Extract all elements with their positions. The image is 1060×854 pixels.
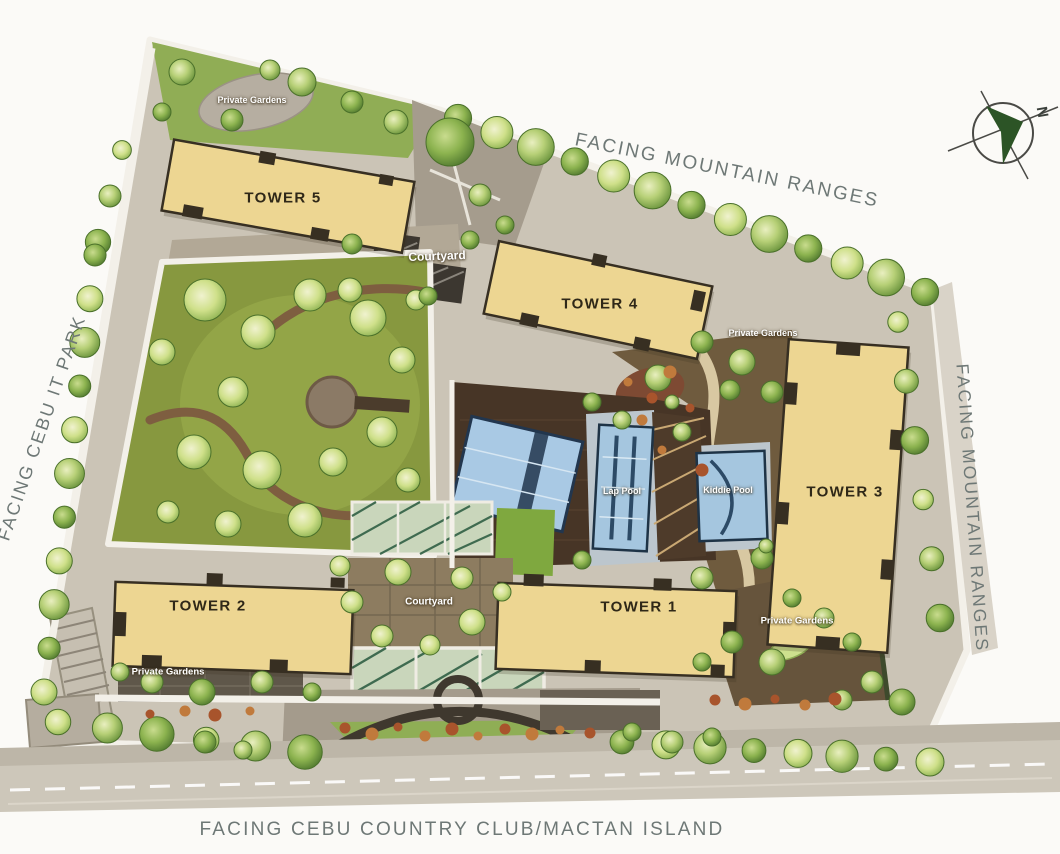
- north-compass: [948, 91, 1058, 179]
- facing-cebu-country-club-label: FACING CEBU COUNTRY CLUB/MACTAN ISLAND: [200, 819, 725, 841]
- tower-4-label: TOWER 4: [561, 296, 638, 313]
- north-arrow-icon: [986, 106, 1023, 164]
- site-plan-page: FACING MOUNTAIN RANGES FACING MOUNTAIN R…: [0, 0, 1060, 854]
- tower-2-label: TOWER 2: [169, 598, 246, 615]
- site-plan-drawing: [0, 0, 1060, 854]
- tower-3-label: TOWER 3: [806, 484, 883, 501]
- private-gardens-east-label: Private Gardens: [728, 328, 797, 338]
- tower-1-label: TOWER 1: [600, 599, 677, 616]
- lap-pool-label: Lap Pool: [603, 486, 641, 496]
- tower-5-label: TOWER 5: [244, 190, 321, 207]
- courtyard-north-label: Courtyard: [408, 248, 466, 264]
- kiddie-pool-label: Kiddie Pool: [703, 485, 753, 495]
- private-gardens-southwest-label: Private Gardens: [132, 667, 205, 678]
- courtyard-south-label: Courtyard: [405, 597, 453, 608]
- northwest-garden: [152, 42, 437, 158]
- mid-trellis: [352, 502, 492, 554]
- kiddie-pool: [696, 451, 767, 541]
- private-gardens-northwest-label: Private Gardens: [217, 95, 286, 105]
- private-gardens-southeast-label: Private Gardens: [761, 616, 834, 627]
